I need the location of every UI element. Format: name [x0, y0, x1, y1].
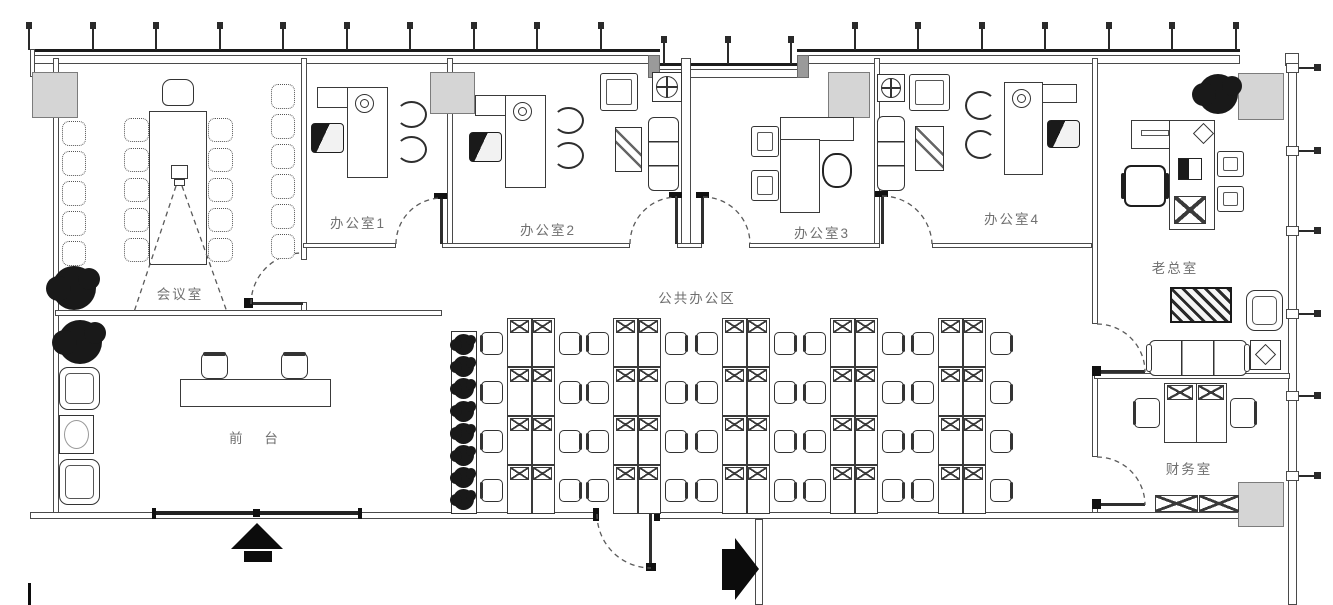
- wall-mullion-tick: [1299, 230, 1319, 232]
- ceiling-diffuser-icon: [652, 72, 682, 102]
- guest-chair: [396, 101, 427, 128]
- desk-lamp-icon: [1012, 89, 1031, 108]
- office1-label: 办公室1: [303, 212, 413, 232]
- wall-joint: [1286, 63, 1299, 73]
- file-cabinet: [833, 369, 852, 382]
- file-cabinet: [964, 418, 983, 431]
- door-leaf-boss: [1097, 370, 1145, 373]
- wall-mullion-tick: [981, 28, 983, 50]
- wall-mullion-tick: [1299, 150, 1319, 152]
- wall-mullion-tick: [346, 28, 348, 50]
- meeting-table-chair: [124, 208, 149, 232]
- task-chair: [774, 479, 796, 502]
- desk-lamp-icon: [513, 102, 532, 121]
- file-cabinet: [725, 320, 744, 333]
- boss-sofa: [1149, 340, 1247, 376]
- desk-shelf: [475, 95, 506, 116]
- planter-plant: [453, 334, 474, 355]
- file-cabinet: [616, 467, 635, 480]
- task-chair: [1134, 398, 1160, 428]
- wall-mullion-tick: [854, 28, 856, 50]
- wall-office-front: [303, 243, 396, 248]
- meeting-wall-chair: [271, 204, 295, 229]
- wall-mullion-tick: [92, 28, 94, 50]
- planter-plant: [453, 423, 474, 444]
- door-arc-meeting: [251, 253, 302, 304]
- reception-chair: [281, 352, 308, 379]
- side-table: [59, 415, 94, 454]
- wall-mullion-tick: [409, 28, 411, 50]
- task-chair: [665, 381, 687, 404]
- meeting-wall-chair: [271, 84, 295, 109]
- wall-office2-office3: [681, 58, 691, 245]
- meeting-table-chair: [208, 148, 233, 172]
- office3-desk-return: [780, 139, 820, 213]
- task-chair: [804, 479, 826, 502]
- wall-mullion-tick: [600, 28, 602, 50]
- desk-drawer: [1141, 130, 1169, 136]
- wall-joint: [1286, 471, 1299, 481]
- file-cabinet: [533, 320, 552, 333]
- column: [430, 72, 475, 114]
- wall-mullion-tick: [1235, 28, 1237, 50]
- door-hinge: [875, 191, 888, 197]
- wall-mullion-tick: [1044, 28, 1046, 50]
- lounge-chair: [909, 74, 950, 111]
- door-hinge: [434, 193, 447, 199]
- door-leaf-office4: [881, 196, 884, 244]
- wall-meeting-bottom: [55, 310, 442, 316]
- file-cabinet: [748, 418, 767, 431]
- wall-office-front: [932, 243, 1092, 248]
- file-cabinet: [1198, 385, 1224, 400]
- task-chair: [696, 332, 718, 355]
- armchair: [59, 459, 100, 505]
- guest-chair: [965, 91, 996, 120]
- door-post: [152, 508, 156, 519]
- wall-mullion-tick: [1299, 313, 1319, 315]
- door-post: [358, 508, 362, 519]
- cabinet: [1174, 196, 1206, 224]
- wall-office-front: [677, 243, 702, 248]
- lounge-chair: [600, 73, 638, 111]
- file-cabinet: [856, 467, 875, 480]
- wall-mullion-tick: [1108, 28, 1110, 50]
- open-office-label: 公共办公区: [622, 287, 772, 307]
- task-chair: [559, 332, 581, 355]
- top-slab-edge-recessed: [656, 63, 801, 66]
- coffee-table: [615, 127, 642, 172]
- meeting-table-chair: [208, 178, 233, 202]
- entrance-right-arrow-icon: [735, 538, 759, 600]
- exterior-wall-top: [797, 55, 1240, 64]
- door-arc-office4: [882, 196, 932, 244]
- entrance-right-arrow-bar: [722, 549, 735, 590]
- door-leaf-finance: [1097, 503, 1145, 506]
- door-arc-office2: [630, 197, 677, 244]
- door-hinge: [1092, 366, 1101, 376]
- task-chair: [1230, 398, 1256, 428]
- office2-label: 办公室2: [493, 219, 603, 239]
- tea-table: [1170, 287, 1232, 323]
- wall-mullion-tick: [1171, 28, 1173, 50]
- guest-chair: [751, 170, 779, 201]
- file-cabinet: [748, 467, 767, 480]
- meeting-wall-chair: [62, 151, 86, 176]
- task-chair: [990, 430, 1012, 453]
- task-chair: [665, 332, 687, 355]
- file-cabinet: [856, 369, 875, 382]
- guest-chair: [553, 107, 584, 134]
- projector-lens: [174, 179, 185, 186]
- task-chair: [912, 479, 934, 502]
- file-cabinet: [533, 418, 552, 431]
- wall-mullion-tick: [282, 28, 284, 50]
- file-cabinet: [510, 320, 529, 333]
- reception-chair: [201, 352, 228, 379]
- task-chair: [587, 332, 609, 355]
- meeting-table-chair: [208, 238, 233, 262]
- wall-mullion-tick: [473, 28, 475, 50]
- task-chair: [587, 430, 609, 453]
- door-arc-boss: [1097, 324, 1145, 372]
- exterior-wall-right: [1288, 55, 1297, 605]
- guest-chair: [965, 130, 996, 159]
- file-cabinet: [510, 369, 529, 382]
- task-chair: [990, 332, 1012, 355]
- door-hinge: [1092, 499, 1101, 509]
- guest-chair: [1217, 151, 1244, 177]
- office1-exec-chair: [311, 123, 344, 153]
- meeting-wall-chair: [271, 144, 295, 169]
- file-cabinet: [941, 320, 960, 333]
- file-cabinet: [725, 369, 744, 382]
- meeting-wall-chair: [62, 181, 86, 206]
- task-chair: [882, 332, 904, 355]
- office4-label: 办公室4: [957, 208, 1067, 228]
- wall-joint: [1286, 391, 1299, 401]
- column: [32, 72, 78, 118]
- file-cabinet: [533, 369, 552, 382]
- task-chair: [696, 479, 718, 502]
- task-chair: [912, 381, 934, 404]
- file-cabinet: [964, 467, 983, 480]
- wall-mullion-tick: [536, 28, 538, 50]
- meeting-table-chair: [208, 208, 233, 232]
- column: [1238, 73, 1284, 120]
- exterior-wall-top: [30, 55, 660, 64]
- file-cabinet: [1167, 385, 1193, 400]
- task-chair: [559, 430, 581, 453]
- door-hinge: [646, 563, 656, 571]
- storage-cabinet: [1155, 495, 1198, 512]
- meeting-wall-chair: [271, 234, 295, 259]
- task-chair: [774, 332, 796, 355]
- plant: [1198, 74, 1238, 114]
- task-chair: [559, 381, 581, 404]
- file-cabinet: [639, 418, 658, 431]
- task-chair: [665, 479, 687, 502]
- task-chair: [990, 381, 1012, 404]
- wall-mullion-tick: [1299, 475, 1319, 477]
- meeting-table-chair: [208, 118, 233, 142]
- task-chair: [559, 479, 581, 502]
- file-cabinet: [941, 369, 960, 382]
- wall-mullion-tick: [663, 42, 665, 64]
- entrance-up-arrow-base: [244, 551, 272, 562]
- task-chair: [587, 381, 609, 404]
- ceiling-diffuser-icon: [877, 74, 905, 102]
- finance-room-label: 财务室: [1134, 458, 1244, 478]
- door-post: [253, 509, 260, 517]
- file-cabinet: [856, 418, 875, 431]
- reception-desk: [180, 379, 331, 407]
- wall-boss-left: [1092, 58, 1098, 324]
- task-chair: [912, 332, 934, 355]
- file-cabinet: [748, 320, 767, 333]
- boss-exec-chair: [1124, 165, 1166, 207]
- task-chair: [804, 381, 826, 404]
- file-cabinet: [725, 418, 744, 431]
- wall-mullion-tick: [1299, 395, 1319, 397]
- storage-cabinet: [1199, 495, 1239, 512]
- entrance-up-arrow-icon: [231, 523, 283, 549]
- reception-label: 前 台: [183, 427, 333, 447]
- side-table: [1250, 340, 1281, 370]
- task-chair: [774, 430, 796, 453]
- task-chair: [481, 430, 503, 453]
- desk-files: [1178, 158, 1202, 180]
- task-chair: [587, 479, 609, 502]
- task-chair: [804, 430, 826, 453]
- file-cabinet: [833, 320, 852, 333]
- projector: [171, 165, 188, 179]
- wall-mullion-tick: [790, 42, 792, 64]
- file-cabinet: [941, 418, 960, 431]
- meeting-table-chair: [124, 178, 149, 202]
- wall-mullion-tick: [155, 28, 157, 50]
- door-hinge: [669, 192, 682, 198]
- file-cabinet: [833, 467, 852, 480]
- door-post: [593, 508, 599, 521]
- file-cabinet: [964, 320, 983, 333]
- survey-mark: [28, 583, 31, 605]
- office3-label: 办公室3: [767, 222, 877, 242]
- armchair: [1246, 290, 1283, 331]
- task-chair: [990, 479, 1012, 502]
- boss-room-label: 老总室: [1120, 257, 1230, 277]
- coffee-table: [915, 126, 944, 171]
- top-slab-edge: [797, 49, 1240, 52]
- meeting-room-label: 会议室: [125, 283, 235, 303]
- office-floor-plan: 会议室 办公室1 办公室2 办公室3 办公室4 公共办公区 前 台 老总室 财务…: [0, 0, 1333, 605]
- file-cabinet: [856, 320, 875, 333]
- task-chair: [774, 381, 796, 404]
- file-cabinet: [639, 369, 658, 382]
- task-chair: [696, 430, 718, 453]
- office2-exec-chair: [469, 132, 502, 162]
- column: [828, 72, 870, 118]
- wall-office-front: [749, 243, 880, 248]
- guest-chair: [553, 142, 584, 169]
- planter-plant: [453, 445, 474, 466]
- task-chair: [882, 430, 904, 453]
- plant: [58, 320, 102, 364]
- door-hinge: [696, 192, 709, 198]
- task-chair: [481, 381, 503, 404]
- desk-lamp-icon: [355, 94, 374, 113]
- file-cabinet: [533, 467, 552, 480]
- file-cabinet: [616, 320, 635, 333]
- task-chair: [912, 430, 934, 453]
- task-chair: [481, 332, 503, 355]
- door-leaf-meeting: [251, 302, 303, 305]
- plant: [52, 266, 96, 310]
- desk-shelf: [1042, 84, 1077, 103]
- column: [1238, 482, 1284, 527]
- armchair: [59, 367, 100, 410]
- door-arc-side-entrance: [597, 514, 651, 568]
- meeting-wall-chair: [271, 174, 295, 199]
- file-cabinet: [941, 467, 960, 480]
- wall-joint: [1286, 226, 1299, 236]
- sofa: [877, 116, 905, 191]
- file-cabinet: [639, 467, 658, 480]
- door-leaf-side-entrance: [649, 514, 652, 568]
- wall-mullion-tick: [917, 28, 919, 50]
- meeting-wall-chair: [62, 211, 86, 236]
- wall-joint: [1286, 309, 1299, 319]
- file-cabinet: [725, 467, 744, 480]
- file-cabinet: [748, 369, 767, 382]
- meeting-table-chair: [124, 238, 149, 262]
- meeting-wall-chair: [62, 121, 86, 146]
- guest-chair: [751, 126, 779, 157]
- task-chair: [804, 332, 826, 355]
- task-chair: [696, 381, 718, 404]
- file-cabinet: [833, 418, 852, 431]
- conference-table: [149, 111, 207, 265]
- guest-chair: [1217, 186, 1244, 212]
- sofa: [648, 117, 679, 191]
- door-leaf-office3: [701, 197, 704, 244]
- meeting-table-chair: [124, 118, 149, 142]
- office3-desk-top: [780, 117, 854, 141]
- office4-exec-chair: [1047, 120, 1080, 148]
- task-chair: [882, 381, 904, 404]
- wall-end-cap: [797, 55, 809, 78]
- conference-head-chair: [162, 79, 194, 106]
- file-cabinet: [964, 369, 983, 382]
- door-hinge: [244, 298, 253, 308]
- meeting-wall-chair: [62, 241, 86, 266]
- planter-plant: [453, 401, 474, 422]
- file-cabinet: [510, 418, 529, 431]
- wall-joint: [1286, 146, 1299, 156]
- desk-shelf: [317, 87, 348, 108]
- file-cabinet: [616, 369, 635, 382]
- task-chair: [882, 479, 904, 502]
- file-cabinet: [639, 320, 658, 333]
- wall-mullion-tick: [219, 28, 221, 50]
- door-arc-office3: [703, 197, 750, 244]
- wall-mullion-tick: [28, 28, 30, 50]
- file-cabinet: [616, 418, 635, 431]
- door-leaf-office2: [675, 197, 678, 244]
- file-cabinet: [510, 467, 529, 480]
- office3-exec-chair: [822, 153, 852, 188]
- door-leaf-office1: [440, 198, 443, 244]
- wall-finance-left: [1092, 370, 1098, 457]
- task-chair: [481, 479, 503, 502]
- task-chair: [665, 430, 687, 453]
- meeting-wall-chair: [271, 114, 295, 139]
- wall-mullion-tick: [1299, 67, 1319, 69]
- wall-office-front: [442, 243, 630, 248]
- wall-mullion-tick: [727, 42, 729, 64]
- guest-chair: [396, 136, 427, 163]
- meeting-table-chair: [124, 148, 149, 172]
